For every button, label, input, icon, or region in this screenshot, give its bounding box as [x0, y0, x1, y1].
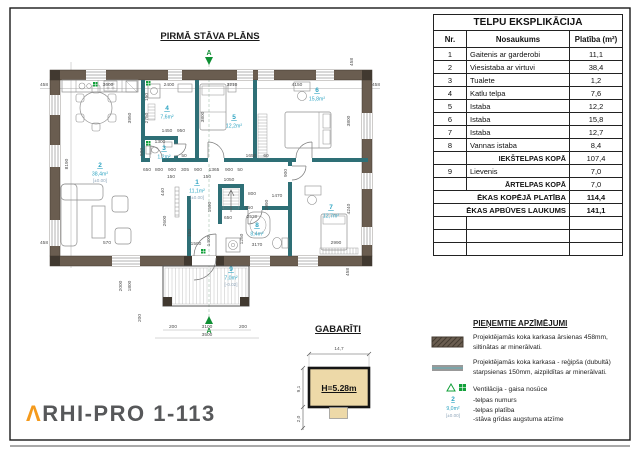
svg-text:3950: 3950: [127, 112, 133, 123]
svg-text:650: 650: [143, 167, 151, 173]
svg-text:8190: 8190: [64, 158, 70, 169]
svg-text:12,2m²: 12,2m²: [226, 124, 242, 130]
svg-text:150: 150: [203, 174, 211, 180]
svg-text:1590: 1590: [207, 201, 213, 212]
table-row: 6Istaba15,8: [434, 113, 623, 126]
svg-text:9,0m²: 9,0m²: [446, 406, 460, 412]
svg-text:1: 1: [195, 179, 199, 186]
svg-text:2: 2: [98, 162, 102, 169]
svg-text:1,2m²: 1,2m²: [157, 155, 171, 161]
svg-text:458: 458: [349, 58, 355, 66]
svg-text:1800: 1800: [127, 280, 133, 291]
svg-text:650: 650: [224, 215, 232, 221]
table-header-row: Nr. Nosaukums Platība (m²): [434, 31, 623, 48]
svg-text:[±0.00]: [±0.00]: [190, 195, 204, 200]
svg-text:8,4m²: 8,4m²: [250, 232, 264, 238]
table-row: 1Gaitenis ar garderobi11,1: [434, 48, 623, 61]
svg-text:3210: 3210: [227, 82, 238, 88]
svg-text:2990: 2990: [264, 199, 270, 210]
svg-text:50: 50: [181, 153, 187, 159]
svg-text:1300: 1300: [155, 139, 166, 145]
svg-text:A: A: [206, 50, 211, 57]
company-logo: ΛRHI-PRO 1-113: [26, 401, 216, 427]
svg-text:250: 250: [245, 205, 253, 211]
col-header-name: Nosaukums: [467, 31, 570, 48]
svg-text:2400: 2400: [164, 82, 175, 88]
svg-text:4: 4: [165, 105, 169, 112]
table-row: ĀRTELPAS KOPĀ7,0: [434, 178, 623, 191]
svg-text:440: 440: [160, 188, 166, 196]
svg-text:1400: 1400: [206, 235, 212, 246]
svg-text:1365: 1365: [209, 167, 220, 173]
svg-text:7,6m²: 7,6m²: [160, 115, 174, 121]
svg-text:458: 458: [40, 240, 48, 246]
svg-text:900: 900: [194, 167, 202, 173]
svg-text:800: 800: [248, 191, 256, 197]
svg-text:14,7: 14,7: [334, 346, 344, 352]
logo-number: 1-113: [153, 401, 216, 426]
svg-text:1050: 1050: [224, 177, 235, 183]
svg-text:3600: 3600: [103, 82, 114, 88]
svg-text:3800: 3800: [346, 115, 352, 126]
svg-text:150: 150: [187, 229, 193, 237]
svg-text:12,7m²: 12,7m²: [323, 214, 339, 220]
logo-text: RHI-PRO: [42, 401, 145, 426]
svg-text:3500: 3500: [202, 332, 213, 338]
table-row: 4Katlu telpa7,6: [434, 87, 623, 100]
table-row: [434, 243, 623, 256]
svg-text:458: 458: [40, 82, 48, 88]
svg-text:[±0.00]: [±0.00]: [93, 178, 107, 183]
table-title: TELPU EKSPLIKĀCIJA: [434, 15, 623, 31]
svg-text:38,4m²: 38,4m²: [92, 172, 108, 178]
table-row: 3Tualete1,2: [434, 74, 623, 87]
svg-text:800: 800: [155, 167, 163, 173]
legend-item: -telpas numurs-telpas platība-stāva grīd…: [473, 396, 635, 425]
svg-text:1650: 1650: [246, 153, 257, 159]
svg-text:150: 150: [167, 174, 175, 180]
table-row: ĒKAS APBŪVES LAUKUMS141,1: [434, 204, 623, 217]
svg-text:60: 60: [263, 153, 269, 159]
svg-text:1470: 1470: [272, 193, 283, 199]
svg-text:200: 200: [169, 324, 177, 330]
svg-text:2990: 2990: [331, 240, 342, 246]
svg-text:1250: 1250: [239, 233, 245, 244]
svg-text:900: 900: [139, 148, 145, 156]
svg-text:1500: 1500: [191, 241, 202, 247]
legend-item: Projektējamās koka karkasa - reģipša (du…: [473, 358, 635, 377]
svg-text:7,0m²: 7,0m²: [224, 276, 238, 282]
plan-title: PIRMĀ STĀVA PLĀNS: [140, 31, 280, 42]
svg-text:200: 200: [239, 324, 247, 330]
legend-title: PIEŅEMTIE APZĪMĒJUMI: [473, 319, 633, 328]
svg-text:7: 7: [329, 204, 333, 211]
svg-text:9: 9: [229, 266, 233, 273]
svg-text:2000: 2000: [118, 280, 124, 291]
svg-text:4150: 4150: [292, 82, 303, 88]
svg-text:305: 305: [181, 167, 189, 173]
svg-text:4240: 4240: [346, 203, 352, 214]
room-explication-table: TELPU EKSPLIKĀCIJA Nr. Nosaukums Platība…: [433, 14, 623, 256]
svg-text:458: 458: [345, 268, 351, 276]
svg-text:2,0: 2,0: [296, 415, 302, 422]
table-row: 7Istaba12,7: [434, 126, 623, 139]
svg-text:50: 50: [237, 167, 243, 173]
svg-text:8: 8: [255, 222, 259, 229]
table-row: 8Vannas istaba8,4: [434, 139, 623, 152]
svg-text:570: 570: [103, 240, 111, 246]
col-header-area: Platība (m²): [570, 31, 623, 48]
svg-text:[-0.02]: [-0.02]: [224, 282, 237, 287]
table-row: IEKŠTELPAS KOPĀ107,4: [434, 152, 623, 165]
table-row: 5Istaba12,2: [434, 100, 623, 113]
svg-text:6: 6: [315, 87, 319, 94]
table-row: ĒKAS KOPĒJĀ PLATĪBA114,4: [434, 191, 623, 204]
table-row: [434, 217, 623, 230]
svg-text:1450: 1450: [162, 128, 173, 134]
table-row: 9Lievenis7,0: [434, 165, 623, 178]
svg-text:3170: 3170: [252, 242, 263, 248]
svg-text:5: 5: [232, 114, 236, 121]
table-row: [434, 230, 623, 243]
svg-text:2600: 2600: [162, 215, 168, 226]
svg-text:458: 458: [372, 82, 380, 88]
svg-text:2750: 2750: [144, 112, 150, 123]
svg-text:950: 950: [177, 128, 185, 134]
svg-text:9,1: 9,1: [296, 385, 302, 392]
svg-text:11,1m²: 11,1m²: [189, 189, 205, 195]
svg-text:2: 2: [451, 396, 455, 403]
svg-text:15,8m²: 15,8m²: [309, 97, 325, 103]
gabariti-title: GABARĪTI: [298, 324, 378, 335]
legend-item: Projektējamās koka karkasa ārsienas 458m…: [473, 333, 635, 352]
svg-text:3800: 3800: [200, 111, 206, 122]
building-height-label: H=5.28m: [309, 368, 369, 407]
drawing-sheet: { "plan": { "title": "PIRMĀ STĀVA PLĀNS"…: [0, 0, 640, 452]
svg-text:[±0.00]: [±0.00]: [446, 413, 460, 418]
svg-text:3: 3: [162, 145, 166, 152]
svg-text:2520: 2520: [247, 214, 258, 220]
svg-text:900: 900: [168, 167, 176, 173]
svg-text:200: 200: [137, 314, 143, 322]
logo-mark: Λ: [26, 401, 42, 426]
svg-text:900: 900: [225, 167, 233, 173]
col-header-nr: Nr.: [434, 31, 467, 48]
svg-text:900: 900: [283, 169, 289, 177]
table-row: 2Viesistaba ar virtuvi38,4: [434, 61, 623, 74]
svg-text:3100: 3100: [202, 324, 213, 330]
svg-text:150: 150: [144, 93, 150, 101]
legend-item: Ventilācija - gaisa nosūce: [473, 385, 635, 395]
